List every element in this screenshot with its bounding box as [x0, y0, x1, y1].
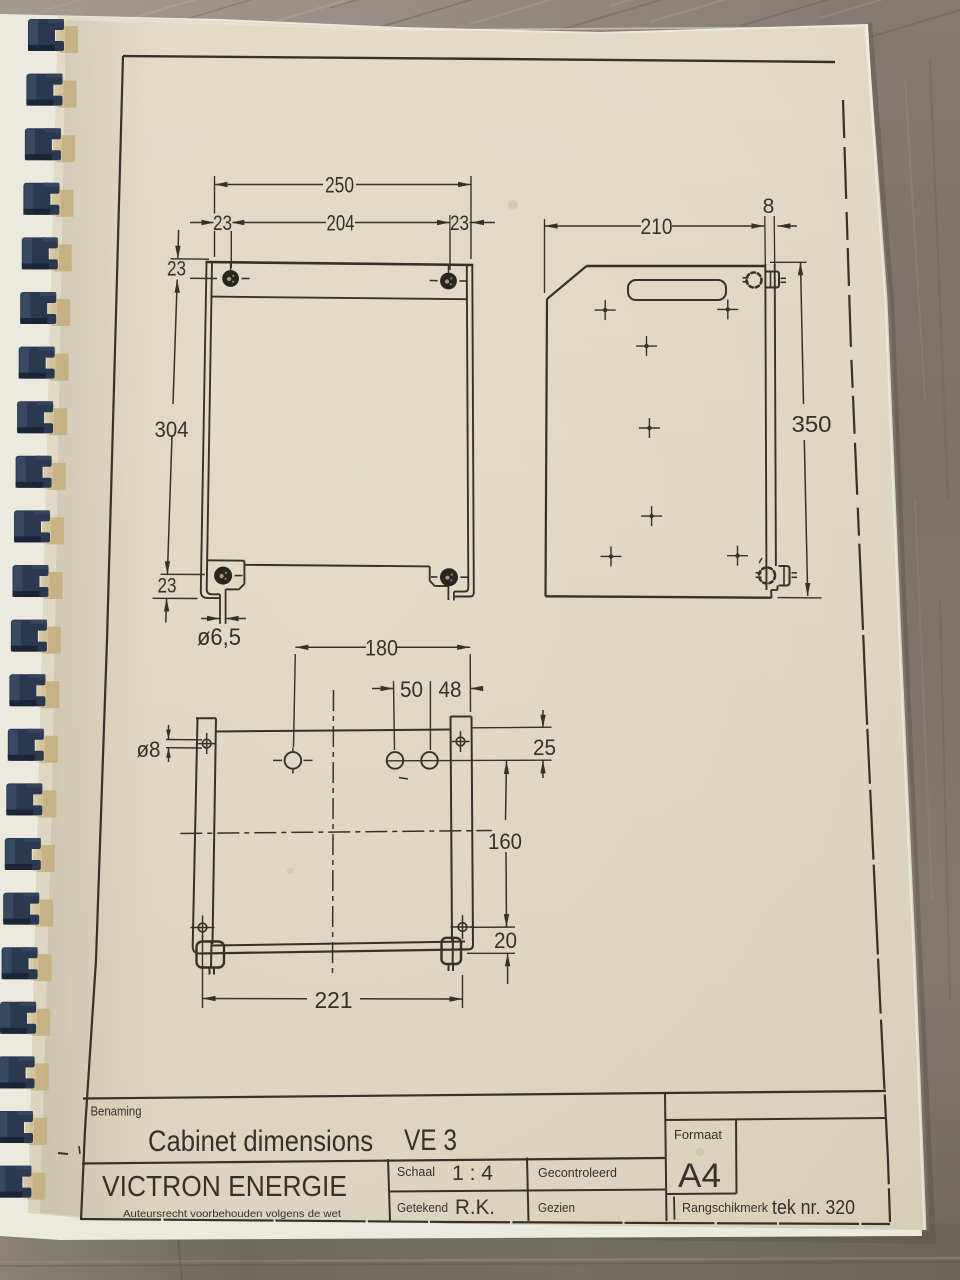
svg-text:ø8: ø8	[137, 737, 161, 762]
svg-text:23: 23	[158, 575, 177, 598]
svg-text:Schaal: Schaal	[397, 1164, 435, 1179]
svg-text:ø6,5: ø6,5	[197, 624, 241, 651]
svg-text:8: 8	[763, 195, 775, 218]
svg-text:Gecontroleerd: Gecontroleerd	[538, 1165, 617, 1180]
svg-text:50: 50	[400, 677, 423, 702]
svg-text:VE 3: VE 3	[404, 1124, 457, 1157]
svg-text:23: 23	[450, 212, 469, 235]
svg-text:A4: A4	[678, 1157, 721, 1195]
svg-text:25: 25	[533, 735, 556, 760]
svg-text:Formaat: Formaat	[674, 1127, 722, 1142]
svg-text:Getekend: Getekend	[397, 1200, 448, 1215]
svg-text:210: 210	[641, 214, 673, 239]
svg-text:Benaming: Benaming	[91, 1104, 142, 1119]
svg-text:180: 180	[365, 636, 398, 661]
svg-text:VICTRON ENERGIE: VICTRON ENERGIE	[102, 1171, 347, 1203]
svg-text:20: 20	[494, 928, 517, 953]
svg-text:1 : 4: 1 : 4	[452, 1162, 493, 1185]
svg-text:Cabinet dimensions: Cabinet dimensions	[148, 1125, 373, 1158]
svg-text:Rangschikmerk: Rangschikmerk	[682, 1200, 768, 1215]
svg-text:304: 304	[155, 417, 189, 442]
svg-text:Gezien: Gezien	[538, 1200, 575, 1215]
svg-text:23: 23	[167, 258, 186, 281]
svg-text:350: 350	[792, 411, 832, 437]
svg-text:48: 48	[439, 677, 462, 702]
svg-text:204: 204	[327, 211, 355, 236]
svg-text:R.K.: R.K.	[455, 1196, 495, 1219]
svg-text:Auteursrecht voorbehouden volg: Auteursrecht voorbehouden volgens de wet	[123, 1208, 341, 1220]
svg-text:tek nr. 320: tek nr. 320	[772, 1197, 855, 1219]
svg-text:23: 23	[213, 212, 232, 235]
svg-text:160: 160	[488, 829, 522, 854]
svg-text:221: 221	[315, 987, 353, 1013]
svg-text:250: 250	[325, 173, 354, 198]
